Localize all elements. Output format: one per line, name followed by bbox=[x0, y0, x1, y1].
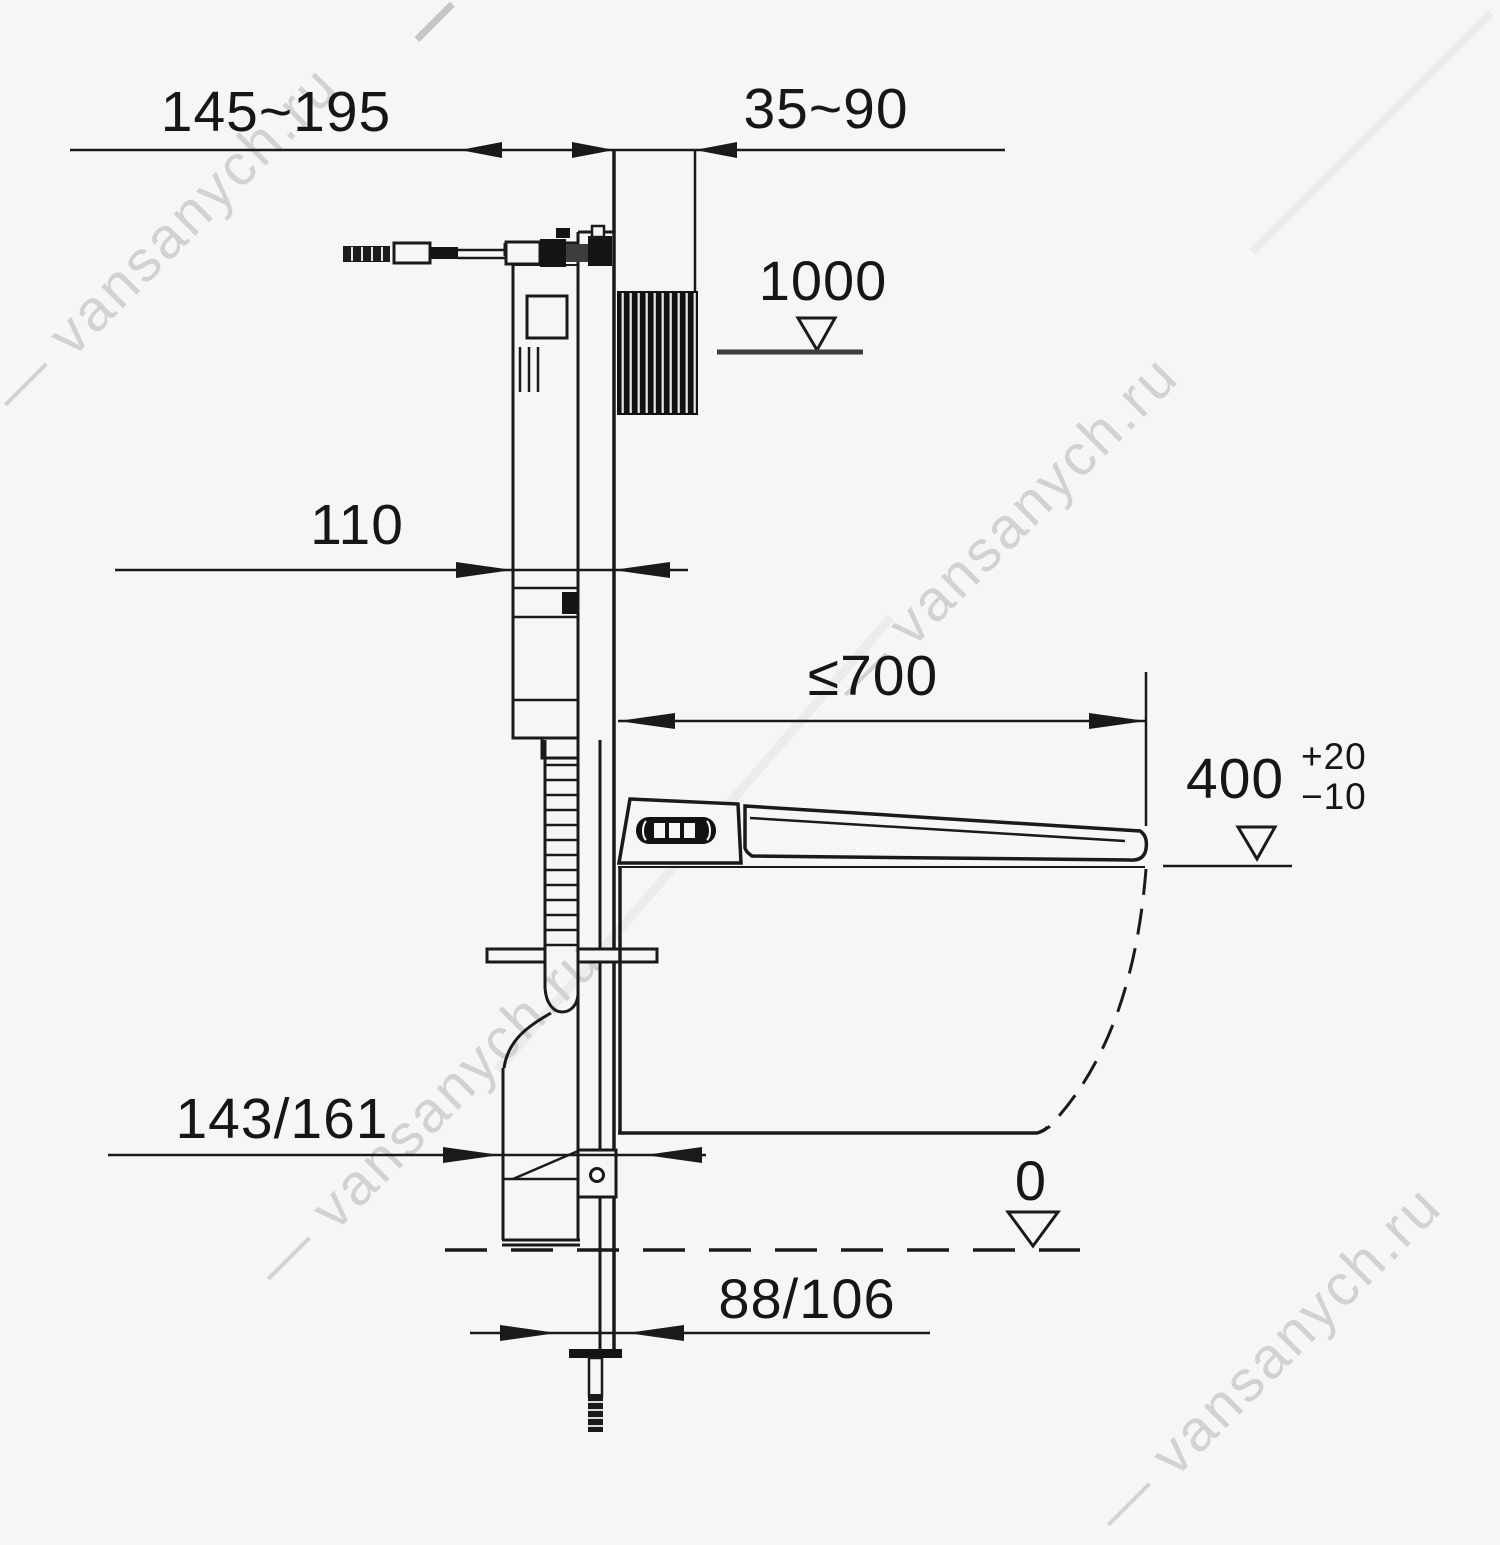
dim-label-drain-offset-upper: 143/161 bbox=[132, 1091, 432, 1148]
flush-sleeve-hatch bbox=[618, 292, 697, 414]
dim-label-panel-height: 1000 bbox=[723, 253, 923, 309]
technical-drawing-page: { "page": { "background": "#f6f6f6", "li… bbox=[0, 0, 1500, 1500]
seat-control-display-icon bbox=[636, 817, 716, 844]
dim-label-seat-height-plus: +20 bbox=[1301, 738, 1367, 775]
level-triangle-icon bbox=[798, 318, 835, 350]
dim-label-seat-height: 400 bbox=[1186, 751, 1284, 808]
dim-label-supply-offset: 145~195 bbox=[126, 84, 426, 141]
dim-label-frame-depth: 110 bbox=[277, 497, 437, 554]
level-triangle-icon bbox=[1238, 827, 1275, 859]
support-bracket bbox=[487, 949, 657, 962]
dim-label-seat-height-minus: −10 bbox=[1301, 778, 1367, 815]
concealed-cistern bbox=[505, 243, 578, 758]
flush-pipe bbox=[504, 740, 578, 1068]
dim-label-floor-level: 0 bbox=[981, 1153, 1081, 1209]
dim-label-bowl-depth: ≤700 bbox=[773, 648, 973, 705]
water-supply-connection bbox=[343, 226, 612, 267]
dim-label-drain-offset-lower: 88/106 bbox=[657, 1271, 957, 1327]
drain-bend bbox=[502, 1068, 580, 1245]
toilet-bowl bbox=[618, 866, 1146, 1133]
dim-label-wall-gap: 35~90 bbox=[726, 81, 926, 138]
diagram-canvas: — vansanych.ru — vansanych.ru — vansanyc… bbox=[0, 0, 1500, 1500]
shower-seat bbox=[619, 799, 1146, 863]
level-triangle-icon bbox=[1008, 1212, 1058, 1246]
